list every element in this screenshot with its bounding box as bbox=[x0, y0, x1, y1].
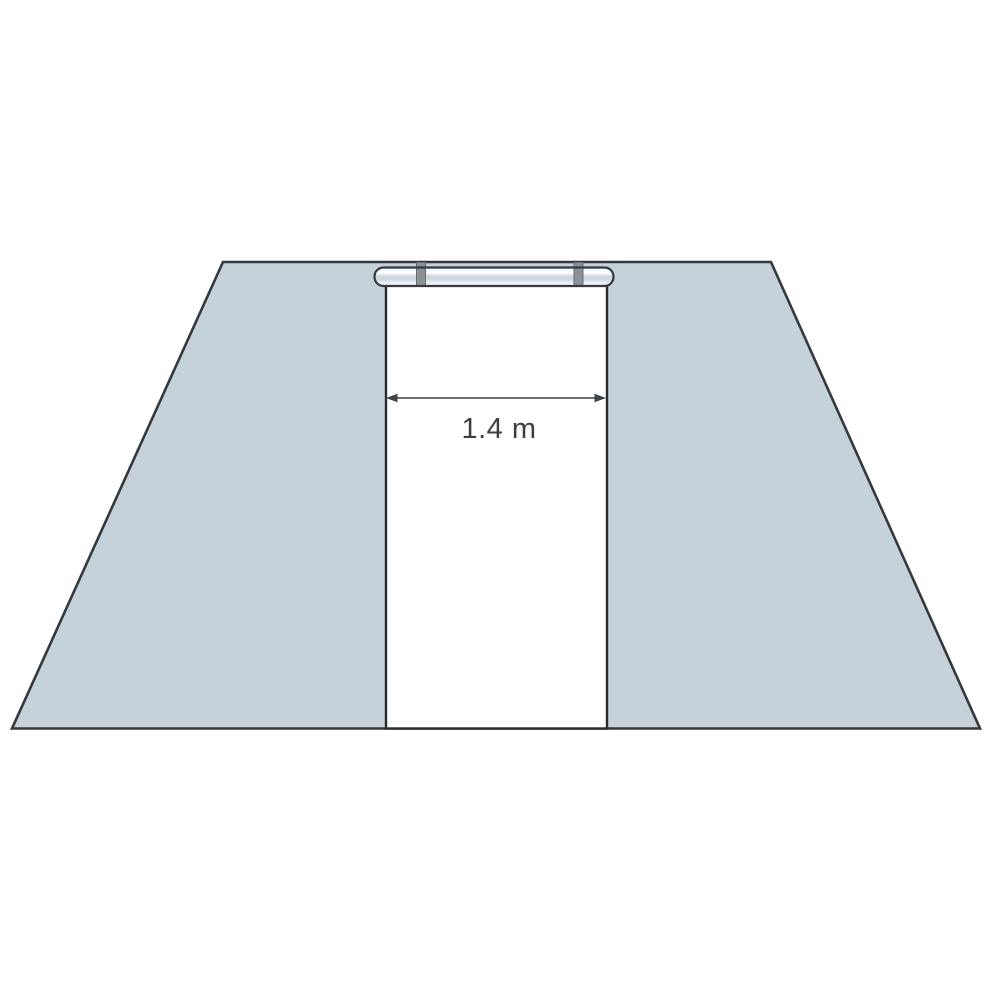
trapezoid-wall-diagram: 1.4 m bbox=[0, 0, 1000, 1000]
dimension-label: 1.4 m bbox=[461, 413, 536, 445]
diagram-canvas: 1.4 m bbox=[0, 0, 1000, 1000]
door-opening bbox=[386, 272, 607, 729]
rail-hanger-right-icon bbox=[574, 263, 583, 286]
rail-hanger-left-icon bbox=[417, 263, 426, 286]
